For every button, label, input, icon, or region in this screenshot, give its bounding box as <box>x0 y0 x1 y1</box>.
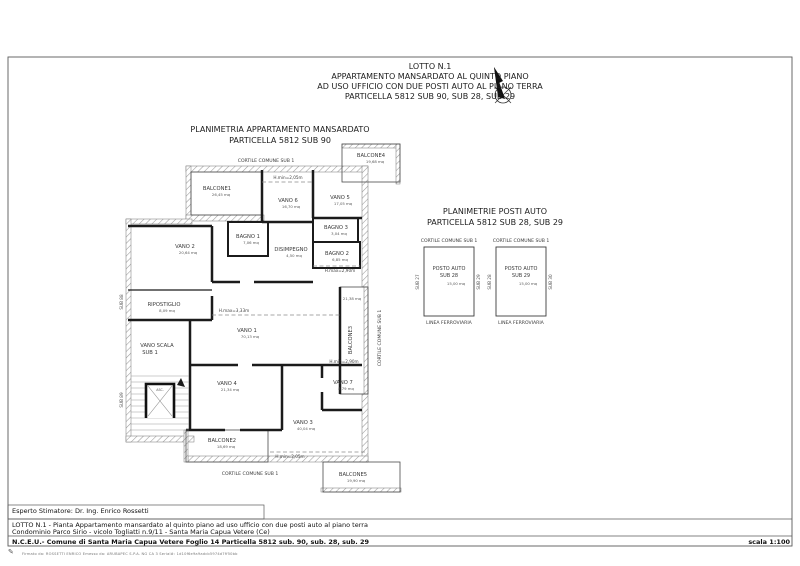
signature-row: Firmato da: ROSSETTI ENRICO Emesso da: A… <box>22 552 238 556</box>
stair-direction-arrow <box>177 378 185 387</box>
parking1-railway-label: LINEA FERROVIARIA <box>426 320 473 326</box>
height-label-top: H.min=2,05m <box>273 175 302 180</box>
parking2-railway-label: LINEA FERROVIARIA <box>498 320 545 326</box>
parking1-right-label: SUB 29 <box>476 274 481 290</box>
elevator-label: ASC. <box>156 388 163 392</box>
parking2-name-line2: SUB 29 <box>512 273 530 279</box>
parking2-name-line1: POSTO AUTO <box>505 266 538 272</box>
plan-title: PLANIMETRIA APPARTAMENTO MANSARDATO PART… <box>160 124 400 146</box>
room-area-vano3: 40,04 mq <box>297 426 316 431</box>
condominio-row: Condominio Parco Sirio - vicolo Togliatt… <box>12 528 270 536</box>
height-label-bottom-right: H.min=2,90m <box>329 359 358 364</box>
scale-label: scala 1:100 <box>748 538 790 546</box>
room-area-vano5: 17,05 mq <box>334 201 353 206</box>
plan-title-line1: PLANIMETRIA APPARTAMENTO MANSARDATO <box>160 124 400 135</box>
parking1-cortile-label: CORTILE COMUNE SUB 1 <box>421 238 478 244</box>
room-area-bagno3: 3,04 mq <box>331 231 347 236</box>
cortile-bottom-label: CORTILE COMUNE SUB 1 <box>222 471 279 477</box>
sub89-label: SUB 89 <box>119 392 124 408</box>
room-area-vano1: 70,13 mq <box>241 334 260 339</box>
header-line3: AD USO UFFICIO CON DUE POSTI AUTO AL PIA… <box>280 82 580 92</box>
outer-walls-hatched <box>126 144 401 492</box>
room-area-vano7: 8,79 mq <box>338 386 354 391</box>
cortile-right-label: CORTILE COMUNE SUB 1 <box>377 310 383 367</box>
plan-sheet: { "header": { "line1": "LOTTO N.1", "lin… <box>0 0 800 566</box>
parking1-area: 15,00 mq <box>447 281 466 286</box>
room-area-bagno1: 7,06 mq <box>243 240 259 245</box>
height-label-bottom-center: H.min=2,05m <box>275 454 304 459</box>
room-label-balcone3: BALCONE3 <box>348 326 354 354</box>
parking2-left-label: SUB 28 <box>487 274 492 290</box>
room-area-balcone2: 18,69 mq <box>217 444 236 449</box>
sheet-header: LOTTO N.1 APPARTAMENTO MANSARDATO AL QUI… <box>280 62 580 102</box>
room-area-ripostiglio: 8,09 mq <box>159 308 175 313</box>
room-area-balcone5: 19,90 mq <box>347 478 366 483</box>
header-line1: LOTTO N.1 <box>280 62 580 72</box>
sub88-label: SUB 88 <box>119 294 124 310</box>
room-area-vano2: 20,64 mq <box>179 250 198 255</box>
nceu-row: N.C.E.U.- Comune di Santa Maria Capua Ve… <box>12 538 369 546</box>
parking2-area: 15,00 mq <box>519 281 538 286</box>
height-label-mid-right: H.max=2,90m <box>325 268 355 273</box>
parking2-right-label: SUB 30 <box>548 274 553 290</box>
room-area-balcone3: 21,38 mq <box>343 296 362 301</box>
signature-icon: ✎ <box>8 548 14 556</box>
parking1-name-line1: POSTO AUTO <box>433 266 466 272</box>
plan-title-line2: PARTICELLA 5812 SUB 90 <box>160 135 400 146</box>
parking1-left-label: SUB 27 <box>415 274 420 290</box>
room-area-disimpegno: 4,50 mq <box>286 253 302 258</box>
stair-label-line2: SUB 1 <box>142 350 158 356</box>
room-area-vano6: 16,70 mq <box>282 204 301 209</box>
parking-title-line1: PLANIMETRIE POSTI AUTO <box>405 206 585 217</box>
parking1-name-line2: SUB 28 <box>440 273 458 279</box>
parking2-cortile-label: CORTILE COMUNE SUB 1 <box>493 238 550 244</box>
parking-title: PLANIMETRIE POSTI AUTO PARTICELLA 5812 S… <box>405 206 585 228</box>
header-line2: APPARTAMENTO MANSARDATO AL QUINTO PIANO <box>280 72 580 82</box>
expert-row: Esperto Stimatore: Dr. Ing. Enrico Rosse… <box>12 507 149 515</box>
room-area-balcone1: 26,45 mq <box>212 192 231 197</box>
height-label-center: H.max=3,33m <box>219 308 249 313</box>
room-area-vano4: 21,34 mq <box>221 387 240 392</box>
room-area-bagno2: 6,85 mq <box>332 257 348 262</box>
room-area-balcone4: 19,68 mq <box>366 159 385 164</box>
cortile-top-label: CORTILE COMUNE SUB 1 <box>238 158 295 164</box>
stair-label-line1: VANO SCALA <box>140 343 174 349</box>
parking-title-line2: PARTICELLA 5812 SUB 28, SUB 29 <box>405 217 585 228</box>
staircase <box>131 376 189 430</box>
header-line4: PARTICELLA 5812 SUB 90, SUB 28, SUB 29 <box>280 92 580 102</box>
